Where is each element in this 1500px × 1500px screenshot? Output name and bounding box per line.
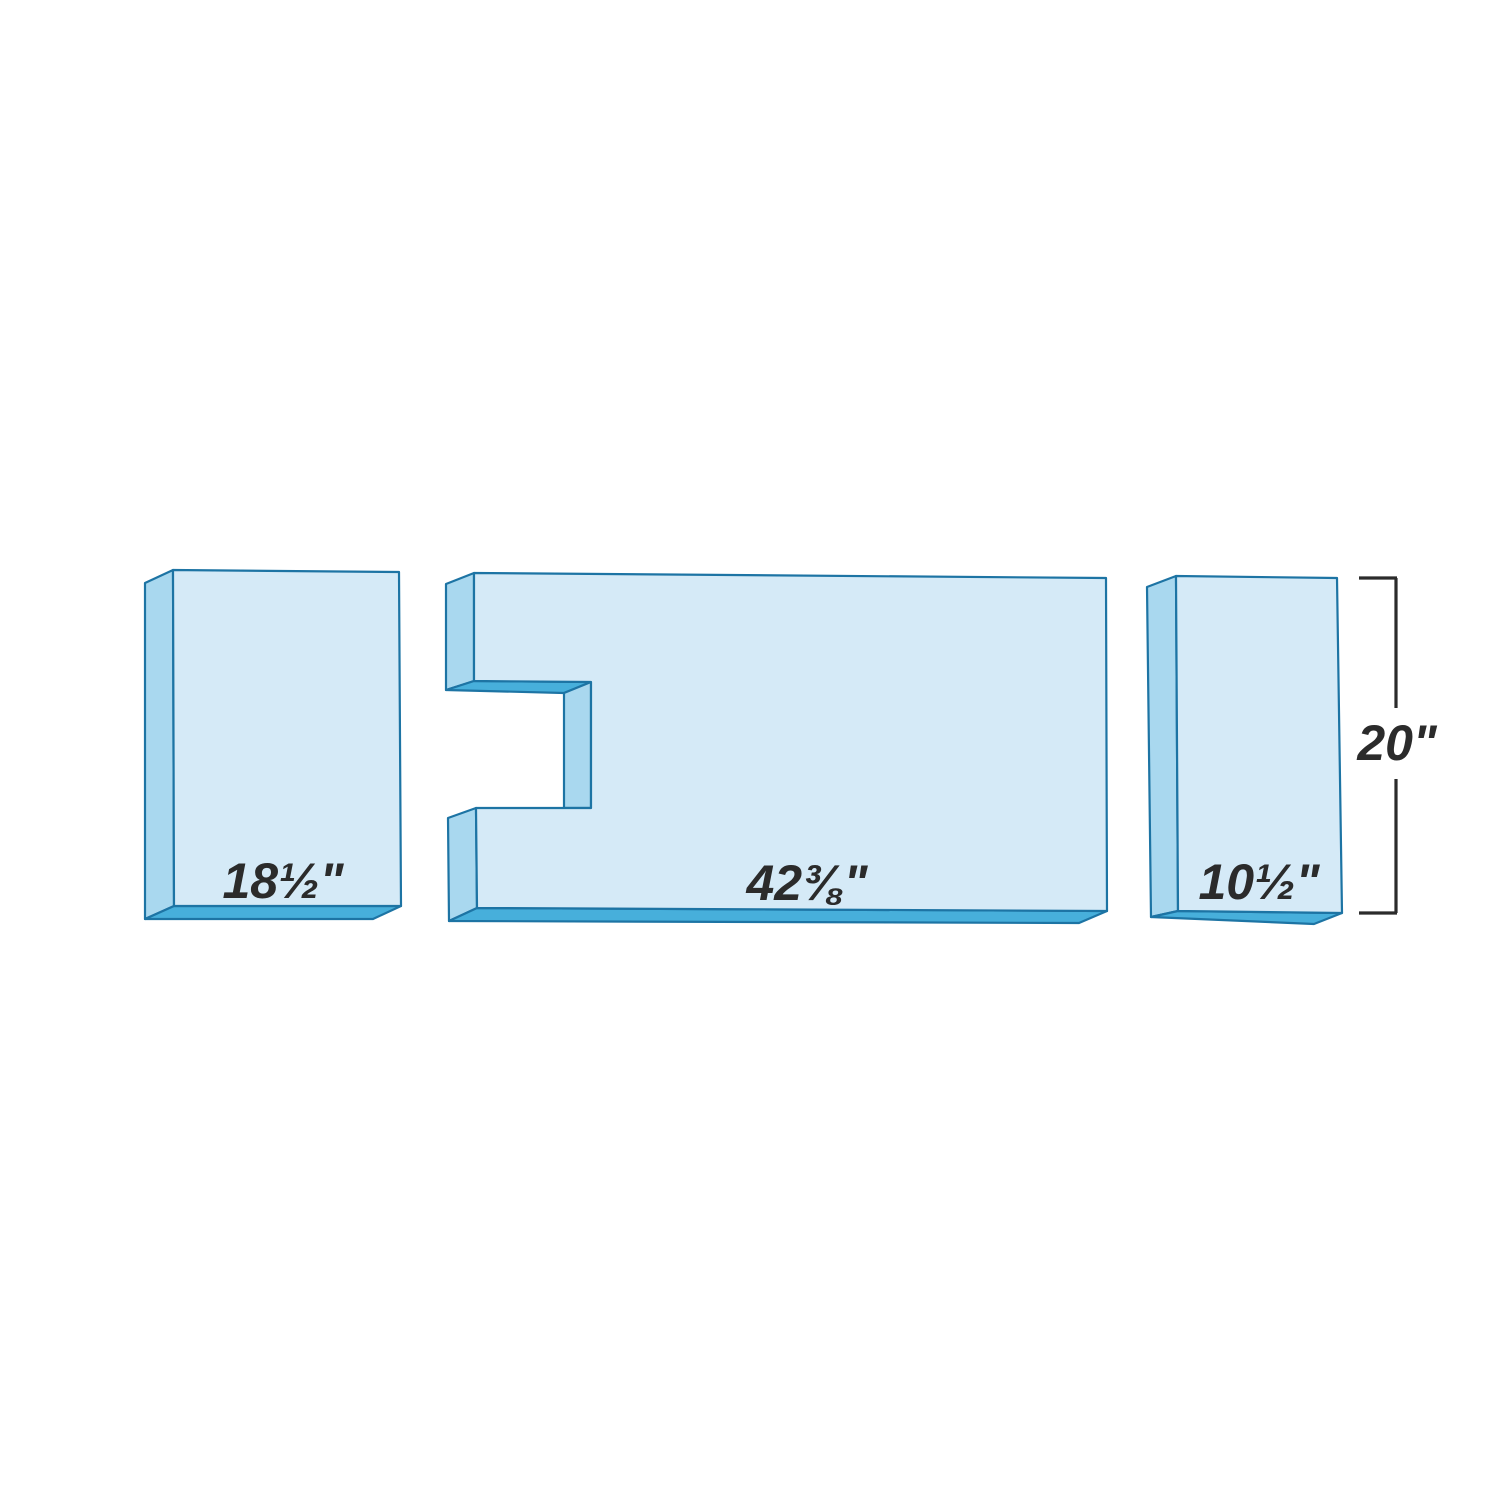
- center-panel-width-label: 42⅜": [745, 855, 868, 911]
- center-panel-upper-side-face: [446, 573, 474, 690]
- center-panel-notch-right-wall: [564, 682, 591, 808]
- center-panel-lower-side-face: [448, 808, 477, 921]
- right-panel: 10½": [1147, 576, 1342, 924]
- panel-dimensions-diagram: 18½" 42⅜" 10½" 20": [0, 0, 1500, 1500]
- diagram-canvas: 18½" 42⅜" 10½" 20": [0, 0, 1500, 1500]
- left-panel-width-label: 18½": [222, 853, 344, 909]
- left-panel-side-face: [145, 570, 174, 919]
- right-panel-width-label: 10½": [1198, 854, 1320, 910]
- center-panel-notched: 42⅜": [446, 573, 1107, 923]
- right-panel-side-face: [1147, 576, 1178, 917]
- left-panel: 18½": [145, 570, 401, 919]
- height-dimension: 20": [1356, 578, 1438, 913]
- height-dimension-label: 20": [1356, 715, 1438, 771]
